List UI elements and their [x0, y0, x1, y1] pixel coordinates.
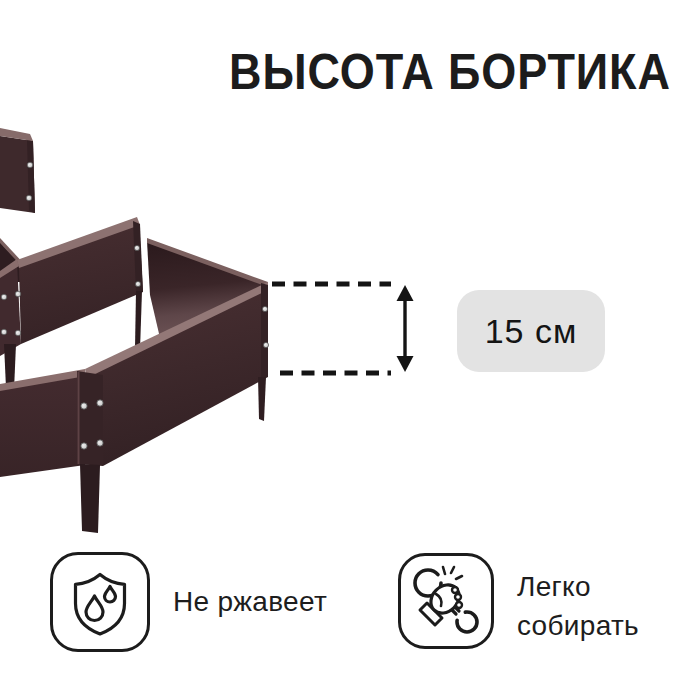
shield-drops-icon: [50, 552, 150, 652]
measurement-value: 15 см: [485, 312, 578, 351]
hand-wrench-icon: [398, 553, 494, 649]
knuckle: [452, 587, 458, 593]
sparks: [443, 567, 462, 579]
feature-label-assembly: Легко собирать: [517, 567, 639, 645]
knuckle: [455, 594, 461, 600]
measurement-badge: 15 см: [457, 290, 605, 372]
measurement-marks: [272, 284, 414, 373]
page-title: ВЫСОТА БОРТИКА: [225, 47, 675, 97]
measurement-arrow: [397, 285, 414, 372]
tier-top: [0, 128, 35, 213]
product-infographic: ВЫСОТА БОРТИКА 15 см Не ржавеет Легко: [0, 0, 700, 700]
water-drop-large: [86, 596, 103, 620]
knuckle: [456, 602, 462, 608]
wrench-head-bottom: [457, 612, 477, 632]
feature-label-rust: Не ржавеет: [173, 582, 327, 621]
water-drop-small: [105, 587, 116, 603]
